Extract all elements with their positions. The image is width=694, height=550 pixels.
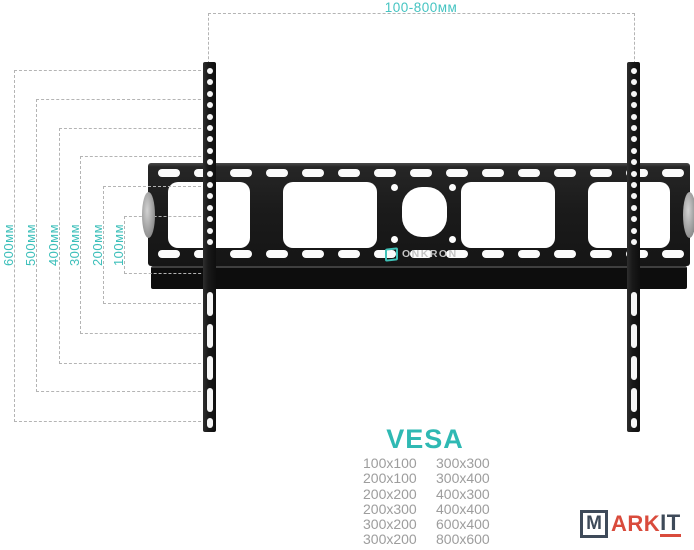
- vesa-size: 300x300: [436, 456, 490, 471]
- vesa-size: 300x200: [363, 517, 417, 532]
- rail-hole: [631, 228, 637, 234]
- brand-logo: ONKRON: [385, 247, 458, 261]
- plate-slot: [374, 169, 396, 177]
- onkron-cube-icon: [385, 247, 398, 261]
- rail-hole: [631, 136, 637, 142]
- rail-hole: [207, 68, 213, 74]
- plate-slot: [662, 169, 684, 177]
- plate-slot: [230, 169, 252, 177]
- rail-hole: [207, 159, 213, 165]
- rail-slot: [631, 356, 637, 380]
- markit-ark-text: ARK: [611, 511, 660, 537]
- plate-slot: [554, 250, 576, 258]
- vesa-size: 600x400: [436, 517, 490, 532]
- rail-hole: [207, 79, 213, 85]
- rail-hole: [207, 239, 213, 245]
- plate-slot: [338, 169, 360, 177]
- vesa-heading: VESA: [355, 424, 495, 455]
- plate-window: [283, 182, 377, 248]
- dimension-box-100: [124, 216, 211, 274]
- markit-m-box: M: [580, 510, 608, 538]
- plate-slot: [518, 169, 540, 177]
- left-end-bumper: [142, 192, 155, 238]
- plate-slot: [302, 250, 324, 258]
- rail-hole: [631, 114, 637, 120]
- plate-slot: [446, 169, 468, 177]
- rail-hole: [631, 239, 637, 245]
- center-cable-cutout: [402, 187, 447, 237]
- rail-hole: [207, 216, 213, 222]
- rail-hole: [207, 171, 213, 177]
- vesa-size: 400x400: [436, 502, 490, 517]
- rail-hole: [631, 125, 637, 131]
- rail-slot: [631, 292, 637, 316]
- rail-slot: [207, 356, 213, 380]
- vesa-size: 300x200: [363, 532, 417, 547]
- plate-slot: [518, 250, 540, 258]
- plate-slot: [266, 169, 288, 177]
- rail-hole: [207, 125, 213, 131]
- plate-slot: [590, 169, 612, 177]
- screw-hole: [449, 236, 456, 243]
- dimension-label-200: 200мм: [90, 215, 104, 275]
- dimension-label-500: 500мм: [23, 215, 37, 275]
- rail-hole: [631, 68, 637, 74]
- markit-it-text: IT: [660, 512, 681, 537]
- plate-window: [461, 182, 555, 248]
- rail-hole: [207, 91, 213, 97]
- vesa-size: 300x400: [436, 471, 490, 486]
- vesa-size: 800x600: [436, 532, 490, 547]
- right-end-bumper: [683, 192, 694, 238]
- plate-slot: [410, 169, 432, 177]
- rail-hole: [631, 79, 637, 85]
- rail-slot: [631, 324, 637, 348]
- rail-hole: [207, 228, 213, 234]
- dimension-label-400: 400мм: [46, 215, 60, 275]
- rail-slot: [631, 388, 637, 412]
- vesa-size: 200x100: [363, 471, 417, 486]
- screw-hole: [449, 184, 456, 191]
- rail-hole: [207, 148, 213, 154]
- vesa-size: 200x300: [363, 502, 417, 517]
- rail-hole: [631, 205, 637, 211]
- rail-hole: [207, 182, 213, 188]
- plate-slot: [482, 250, 504, 258]
- vesa-size: 200x200: [363, 487, 417, 502]
- rail-hole: [207, 114, 213, 120]
- vesa-column-left: 100x100 200x100 200x200 200x300 300x200 …: [363, 456, 417, 548]
- screw-hole: [391, 236, 398, 243]
- vesa-size: 400x300: [436, 487, 490, 502]
- rail-hole: [631, 148, 637, 154]
- rail-hole: [207, 193, 213, 199]
- rail-hole: [207, 102, 213, 108]
- plate-slot: [482, 169, 504, 177]
- rail-hole: [207, 136, 213, 142]
- dimension-label-600: 600мм: [1, 215, 15, 275]
- brand-name: ONKRON: [402, 248, 458, 260]
- screw-hole: [391, 184, 398, 191]
- plate-slot: [590, 250, 612, 258]
- rail-hole: [631, 182, 637, 188]
- product-diagram: 100-800мм 600мм 500мм 400мм 300мм 200мм …: [0, 0, 694, 550]
- plate-slot: [266, 250, 288, 258]
- dimension-label-100: 100мм: [111, 215, 125, 275]
- rail-hole: [207, 205, 213, 211]
- rail-hole: [631, 193, 637, 199]
- plate-slot: [230, 250, 252, 258]
- plate-slot: [338, 250, 360, 258]
- vesa-column-right: 300x300 300x400 400x300 400x400 600x400 …: [436, 456, 490, 548]
- top-dimension-label: 100-800мм: [348, 0, 494, 15]
- top-dimension-bracket: [208, 13, 635, 64]
- rail-hole: [631, 216, 637, 222]
- rail-slot: [207, 388, 213, 412]
- dimension-label-300: 300мм: [67, 215, 81, 275]
- rail-hole: [631, 102, 637, 108]
- rail-hole: [631, 159, 637, 165]
- markit-watermark: M ARK IT: [580, 510, 681, 538]
- plate-slot: [662, 250, 684, 258]
- rail-slot: [207, 324, 213, 348]
- plate-slot: [554, 169, 576, 177]
- rail-slot: [207, 292, 213, 316]
- rail-slot: [207, 418, 213, 428]
- plate-slot: [302, 169, 324, 177]
- rail-hole: [631, 91, 637, 97]
- vesa-size: 100x100: [363, 456, 417, 471]
- rail-slot: [631, 418, 637, 428]
- mount-bottom-flange: [151, 266, 687, 289]
- rail-hole: [631, 171, 637, 177]
